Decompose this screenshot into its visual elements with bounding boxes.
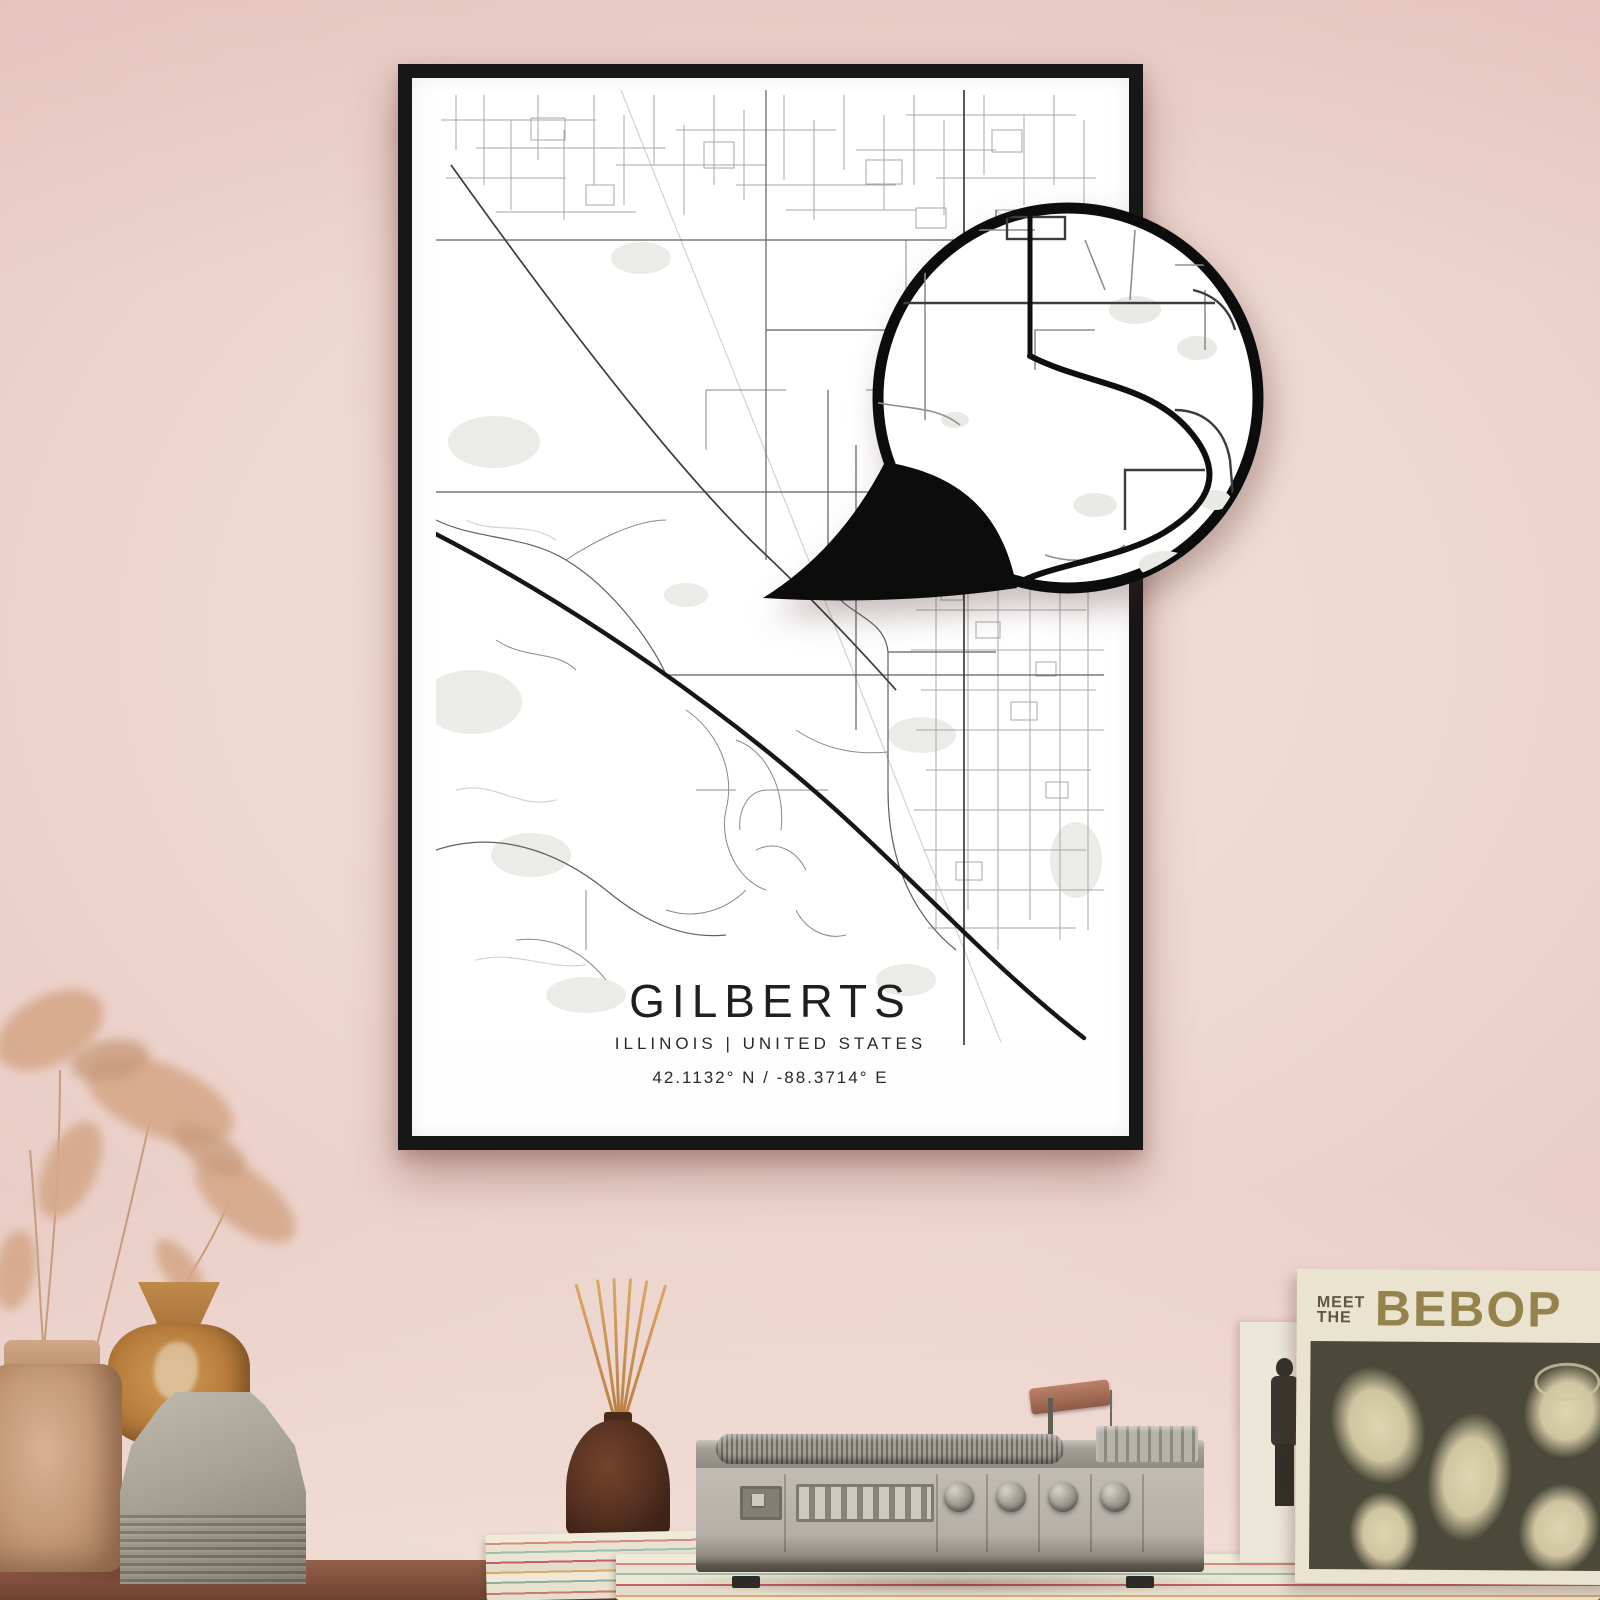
panel-seam <box>784 1474 786 1552</box>
album-face-art <box>1345 1488 1423 1571</box>
player-foot <box>1126 1576 1154 1588</box>
diffuser-bottle <box>566 1420 670 1536</box>
album-face-art <box>1506 1472 1600 1571</box>
reed-diffuser <box>560 1276 680 1536</box>
vase-tan-body <box>0 1364 122 1572</box>
album-pretitle-top: MEET <box>1317 1295 1366 1310</box>
knob <box>996 1482 1026 1512</box>
album-photo-area <box>1309 1341 1600 1571</box>
tonearm-headshell <box>1029 1379 1112 1415</box>
turntable-platter <box>716 1434 1064 1464</box>
album-face-art <box>1419 1407 1521 1548</box>
vase-orange-neck <box>138 1282 220 1328</box>
knob <box>1048 1482 1078 1512</box>
power-button <box>740 1486 782 1520</box>
player-right-module <box>1096 1426 1198 1462</box>
zoom-detail-badge <box>745 170 1270 615</box>
figure-legs <box>1275 1444 1294 1506</box>
player-foot <box>732 1576 760 1588</box>
poster-title: GILBERTS <box>412 974 1129 1028</box>
album-inner: MEET THE BEBOP <box>1309 1279 1600 1571</box>
album-title: BEBOP <box>1375 1279 1563 1338</box>
album-pretitle: MEET THE <box>1317 1295 1366 1325</box>
scene: GILBERTS ILLINOIS | UNITED STATES 42.113… <box>0 0 1600 1600</box>
panel-seam <box>1142 1474 1144 1552</box>
poster-coordinates: 42.1132° N / -88.3714° E <box>412 1068 1129 1088</box>
vase-tan <box>0 1340 122 1572</box>
album-label-logo-oval <box>1534 1363 1600 1401</box>
album-cover: MEET THE BEBOP <box>1295 1269 1600 1585</box>
preset-button-bank <box>796 1484 934 1522</box>
figure-torso <box>1271 1376 1298 1446</box>
album-pretitle-bottom: THE <box>1317 1310 1366 1325</box>
knob <box>944 1482 974 1512</box>
panel-seam <box>1038 1474 1040 1552</box>
poster-subtitle: ILLINOIS | UNITED STATES <box>412 1034 1129 1054</box>
panel-seam <box>1090 1474 1092 1552</box>
figure-head <box>1276 1358 1293 1377</box>
panel-seam <box>936 1474 938 1552</box>
knob <box>1100 1482 1130 1512</box>
panel-seam <box>986 1474 988 1552</box>
album-face-art <box>1316 1354 1440 1496</box>
record-player <box>696 1384 1204 1588</box>
